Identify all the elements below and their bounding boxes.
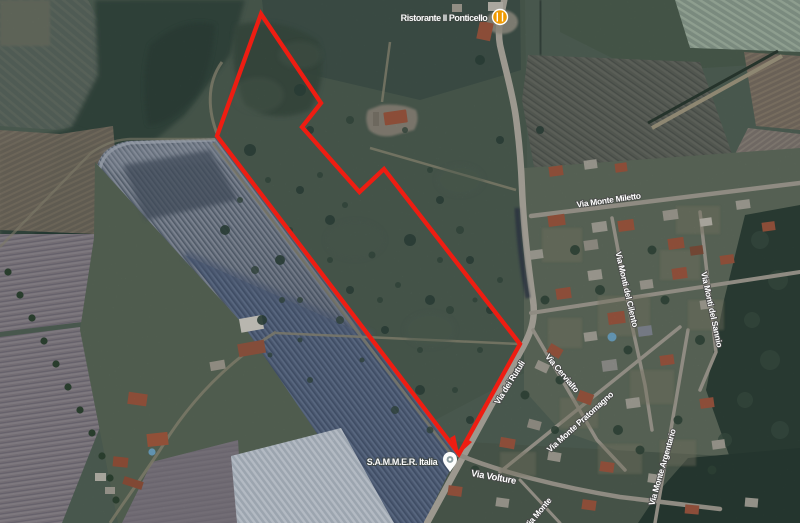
svg-text:S.A.M.M.E.R. Italia: S.A.M.M.E.R. Italia	[367, 457, 439, 467]
svg-text:Ristorante Il Ponticello: Ristorante Il Ponticello	[401, 13, 489, 23]
